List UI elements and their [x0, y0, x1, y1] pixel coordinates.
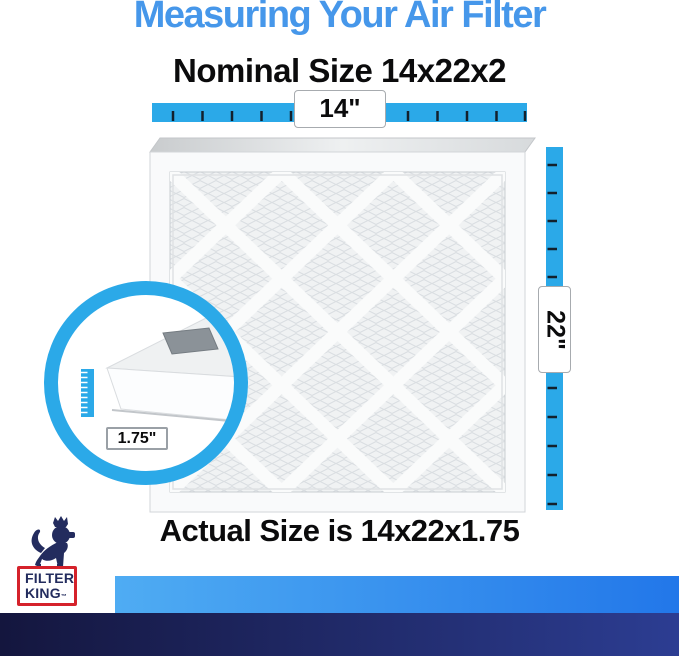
depth-ruler [81, 369, 94, 417]
logo-line1: FILTER [25, 571, 74, 586]
logo-line2: KING™ [25, 586, 74, 605]
bottom-bar-light [115, 576, 679, 613]
infographic: Measuring Your Air Filter Nominal Size 1… [0, 0, 679, 656]
depth-measurement-label: 1.75" [106, 427, 168, 450]
filter-king-logo: FILTER KING™ [0, 514, 115, 613]
trademark-symbol: ™ [61, 594, 67, 600]
bottom-bar-dark [0, 613, 679, 656]
closeup-handle-slot [163, 328, 218, 354]
height-measurement-text: 22" [540, 310, 569, 350]
height-measurement-label: 22" [538, 286, 571, 373]
width-measurement-label: 14" [294, 90, 386, 128]
filter-top-face [150, 138, 535, 152]
filter-king-wordmark: FILTER KING™ [17, 566, 77, 606]
